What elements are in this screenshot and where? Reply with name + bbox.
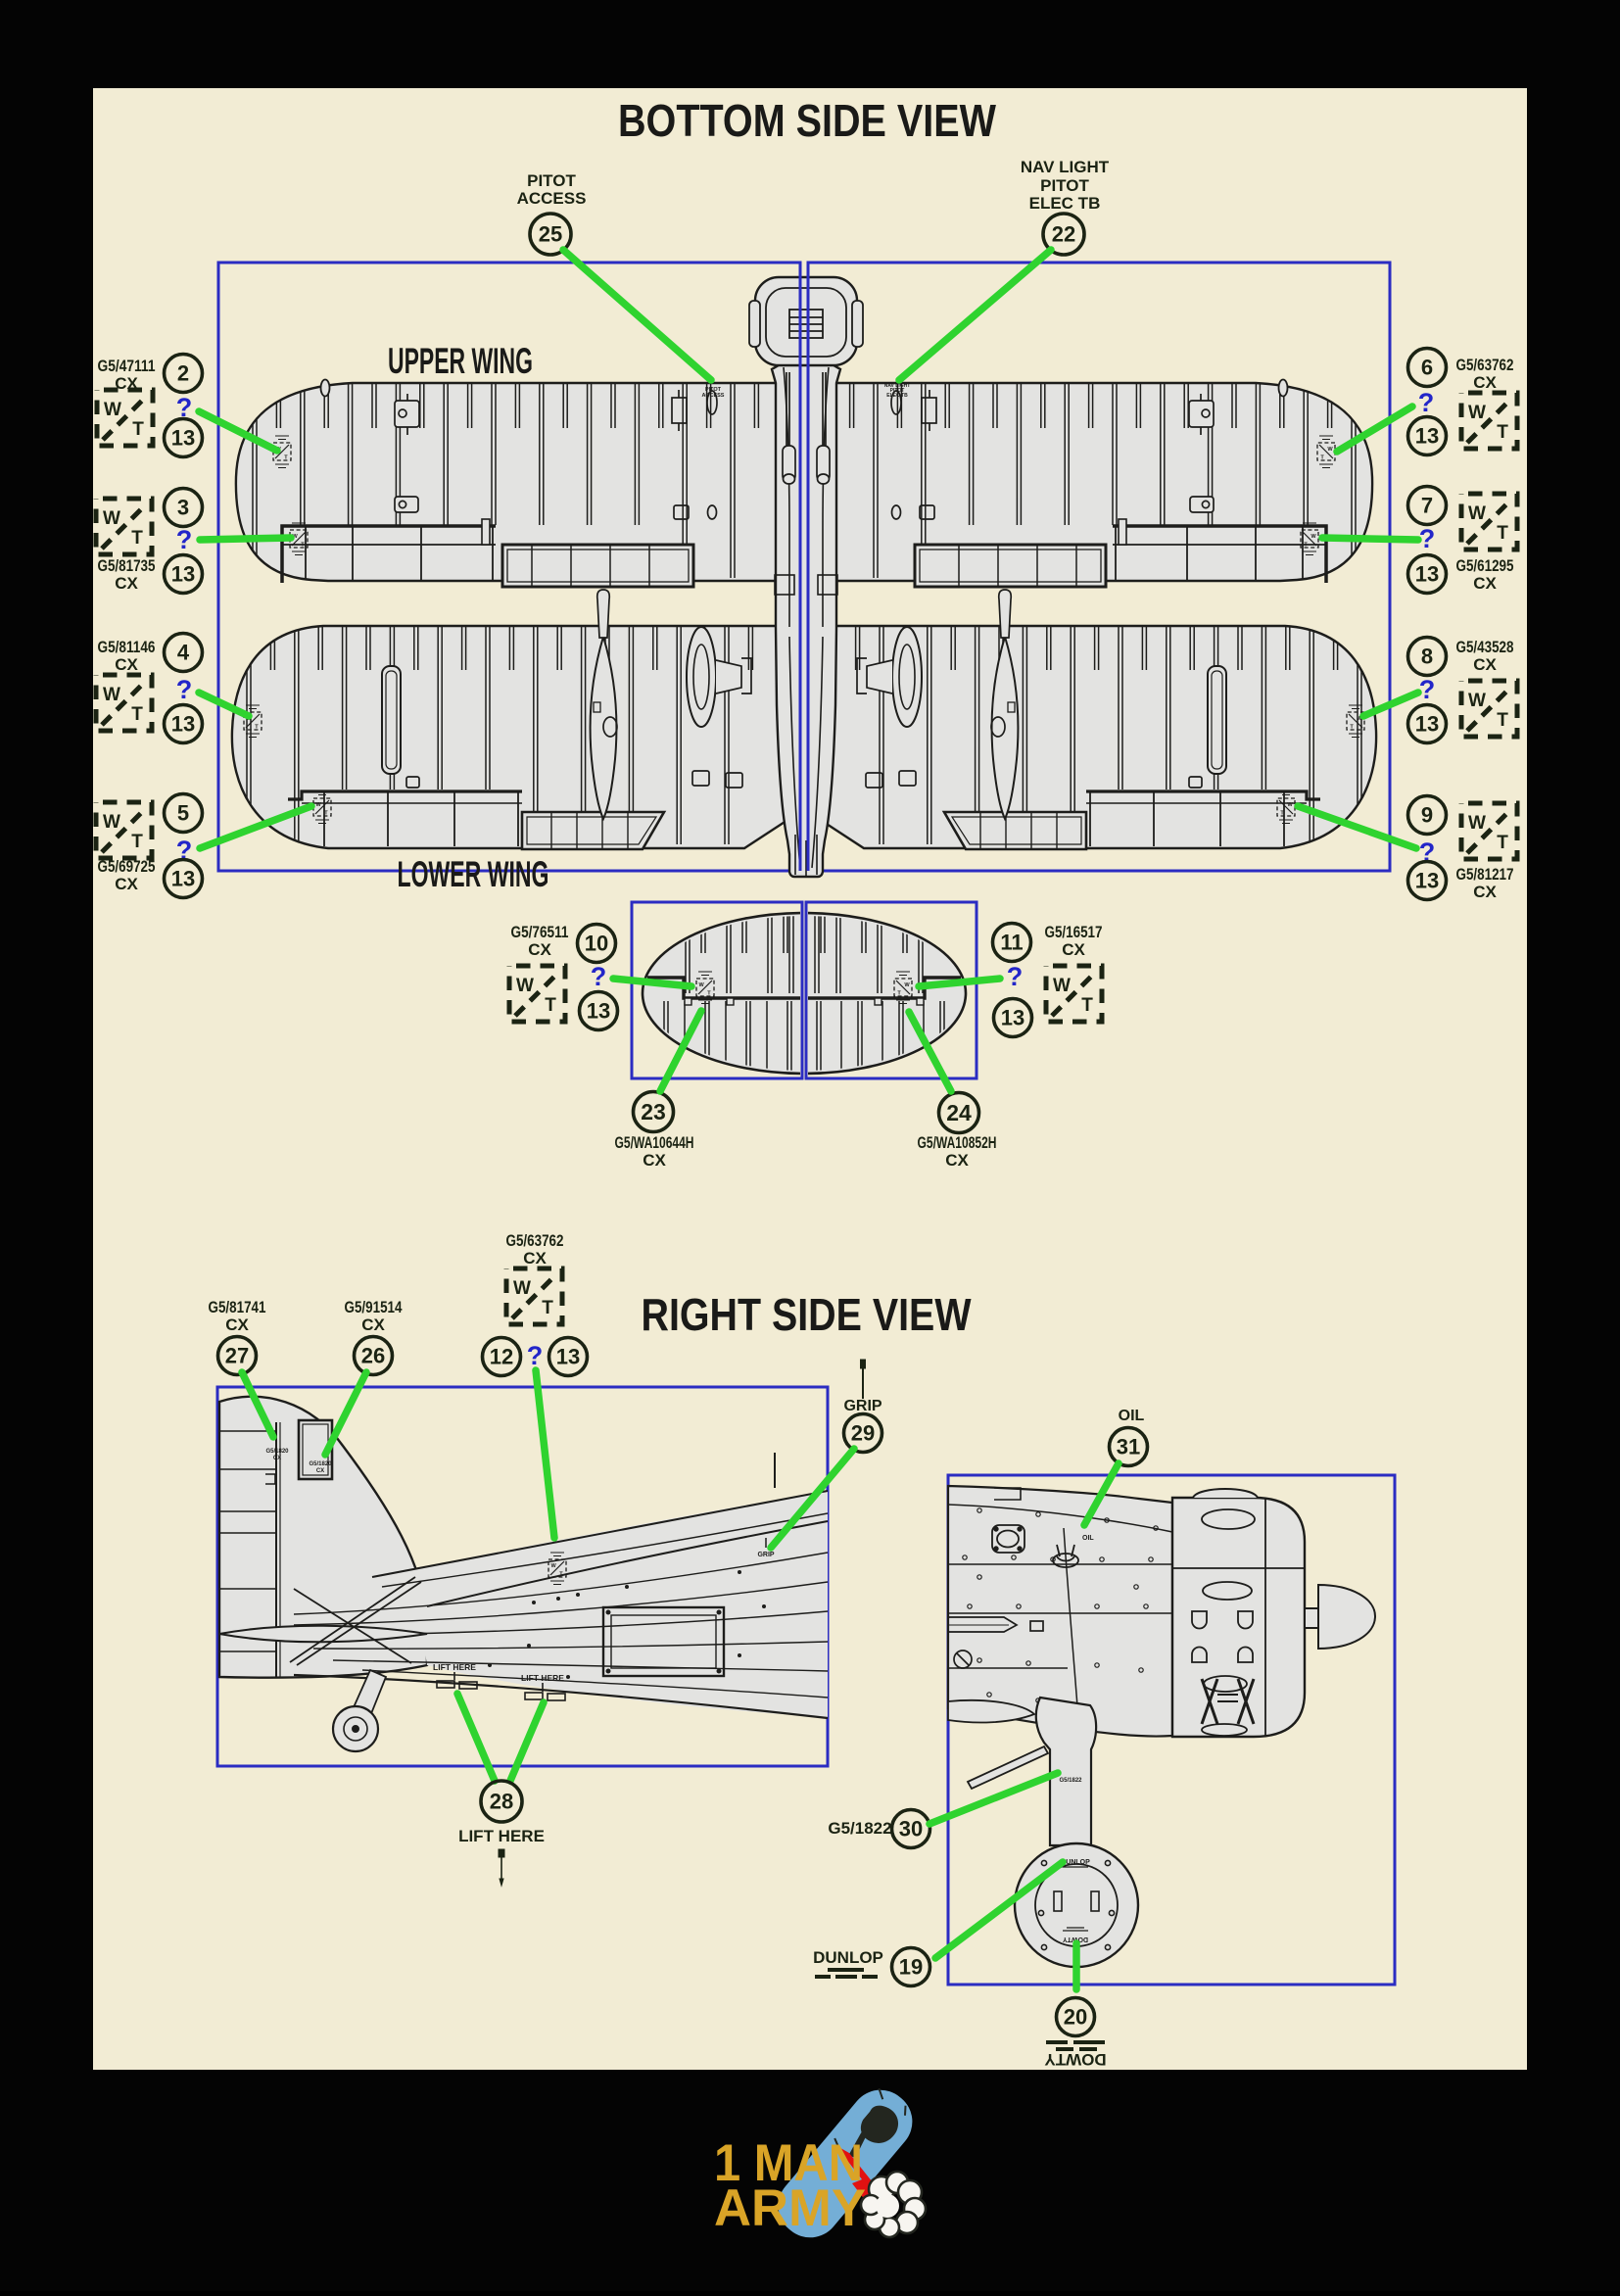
svg-text:T: T <box>1497 710 1508 731</box>
svg-text:13: 13 <box>1001 1006 1024 1030</box>
svg-text:?: ? <box>1419 675 1436 704</box>
svg-text:W: W <box>315 802 321 808</box>
svg-text:9: 9 <box>1421 803 1433 828</box>
svg-text:12: 12 <box>490 1345 513 1369</box>
svg-text:CX: CX <box>115 655 138 674</box>
svg-text:CX: CX <box>316 1468 324 1474</box>
svg-text:G5/81735: G5/81735 <box>98 556 156 575</box>
svg-text:BOTTOM SIDE VIEW: BOTTOM SIDE VIEW <box>618 95 996 146</box>
svg-text:LIFT HERE: LIFT HERE <box>521 1673 564 1683</box>
svg-text:T: T <box>132 419 144 440</box>
svg-text:DOWTY: DOWTY <box>1044 2050 1107 2069</box>
svg-text:T: T <box>1497 833 1508 853</box>
svg-text:G5/81217: G5/81217 <box>1456 865 1514 884</box>
svg-text:25: 25 <box>539 222 562 247</box>
svg-text:ARMY: ARMY <box>714 2179 866 2237</box>
svg-text:OIL: OIL <box>1119 1408 1145 1424</box>
svg-text:G5/WA10644H: G5/WA10644H <box>615 1133 694 1152</box>
svg-text:?: ? <box>176 675 193 704</box>
svg-text:ELEC TB: ELEC TB <box>886 393 908 399</box>
svg-text:CX: CX <box>1062 940 1085 959</box>
svg-text:23: 23 <box>641 1099 666 1124</box>
svg-text:W: W <box>1327 447 1333 453</box>
svg-text:?: ? <box>1418 388 1435 417</box>
svg-text:20: 20 <box>1064 2005 1087 2030</box>
svg-text:13: 13 <box>587 999 610 1024</box>
svg-text:13: 13 <box>1415 712 1439 737</box>
svg-text:T: T <box>131 832 143 852</box>
svg-text:NAV LIGHT: NAV LIGHT <box>1021 158 1110 176</box>
svg-text:T: T <box>1497 422 1508 443</box>
svg-text:W: W <box>698 982 704 988</box>
svg-text:W: W <box>516 976 534 996</box>
svg-text:29: 29 <box>851 1421 875 1446</box>
svg-text:7: 7 <box>1421 494 1433 518</box>
svg-text:W: W <box>550 1563 556 1569</box>
svg-text:?: ? <box>527 1341 544 1370</box>
svg-text:27: 27 <box>225 1344 249 1368</box>
svg-text:31: 31 <box>1117 1435 1140 1459</box>
svg-text:13: 13 <box>1415 424 1439 449</box>
svg-text:22: 22 <box>1052 222 1075 247</box>
svg-text:G5/1820: G5/1820 <box>309 1461 332 1467</box>
svg-text:W: W <box>1468 813 1486 834</box>
svg-text:W: W <box>1053 976 1071 996</box>
svg-text:UPPER WING: UPPER WING <box>388 341 533 381</box>
svg-text:GRIP: GRIP <box>757 1552 774 1558</box>
svg-text:T: T <box>131 528 143 549</box>
svg-text:W: W <box>103 508 120 529</box>
svg-text:G5/WA10852H: G5/WA10852H <box>918 1133 997 1152</box>
svg-text:G5/16517: G5/16517 <box>1045 923 1103 941</box>
svg-text:13: 13 <box>1415 562 1439 587</box>
svg-text:13: 13 <box>556 1345 580 1369</box>
svg-text:W: W <box>1287 802 1293 808</box>
svg-text:LIFT HERE: LIFT HERE <box>458 1827 545 1845</box>
svg-text:G5/1822: G5/1822 <box>1059 1778 1082 1784</box>
svg-text:T: T <box>542 1298 553 1318</box>
svg-text:CX: CX <box>273 1456 281 1461</box>
svg-text:CX: CX <box>528 940 551 959</box>
svg-text:3: 3 <box>177 496 189 520</box>
svg-text:CX: CX <box>523 1249 547 1268</box>
svg-text:13: 13 <box>171 426 195 451</box>
svg-text:10: 10 <box>585 932 608 956</box>
svg-text:G5/81741: G5/81741 <box>209 1298 266 1316</box>
svg-text:28: 28 <box>490 1790 513 1814</box>
svg-text:CX: CX <box>1473 373 1497 392</box>
svg-text:ACCESS: ACCESS <box>517 189 587 208</box>
svg-text:GRIP: GRIP <box>843 1398 881 1414</box>
svg-text:24: 24 <box>946 1100 972 1125</box>
svg-text:LOWER WING: LOWER WING <box>398 854 549 894</box>
svg-text:W: W <box>513 1278 531 1299</box>
svg-text:LIFT HERE: LIFT HERE <box>433 1662 476 1672</box>
svg-text:?: ? <box>1007 962 1024 991</box>
svg-text:G5/91514: G5/91514 <box>345 1298 403 1316</box>
svg-text:5: 5 <box>177 801 189 826</box>
svg-text:G5/76511: G5/76511 <box>511 923 569 941</box>
svg-text:CX: CX <box>115 875 138 893</box>
svg-text:8: 8 <box>1421 645 1433 669</box>
svg-text:PITOT: PITOT <box>527 171 576 190</box>
svg-text:13: 13 <box>1415 869 1439 893</box>
svg-text:19: 19 <box>899 1955 923 1980</box>
svg-text:G5/63762: G5/63762 <box>506 1231 564 1250</box>
svg-text:W: W <box>104 400 121 420</box>
svg-text:T: T <box>131 704 143 725</box>
svg-text:13: 13 <box>171 562 195 587</box>
svg-text:G5/43528: G5/43528 <box>1456 638 1514 656</box>
svg-text:G5/1822: G5/1822 <box>828 1819 891 1838</box>
svg-text:13: 13 <box>171 712 195 737</box>
svg-text:G5/61295: G5/61295 <box>1456 556 1514 575</box>
svg-text:CX: CX <box>115 574 138 593</box>
svg-text:T: T <box>1497 523 1508 544</box>
svg-text:4: 4 <box>177 641 190 665</box>
svg-text:CX: CX <box>1473 574 1497 593</box>
svg-text:30: 30 <box>899 1817 923 1842</box>
svg-text:CX: CX <box>643 1151 666 1170</box>
svg-text:?: ? <box>176 525 193 554</box>
svg-text:W: W <box>103 685 120 705</box>
svg-text:?: ? <box>591 962 607 991</box>
svg-text:T: T <box>1081 995 1093 1016</box>
svg-text:G5/47111: G5/47111 <box>98 357 156 375</box>
svg-text:CX: CX <box>361 1315 385 1334</box>
svg-text:CX: CX <box>945 1151 969 1170</box>
svg-text:DUNLOP: DUNLOP <box>813 1948 883 1967</box>
svg-text:W: W <box>103 812 120 833</box>
svg-text:W: W <box>1468 503 1486 524</box>
svg-text:G5/69725: G5/69725 <box>98 857 156 876</box>
svg-text:26: 26 <box>361 1344 385 1368</box>
svg-text:ACCESS: ACCESS <box>702 393 725 399</box>
svg-text:G5/63762: G5/63762 <box>1456 356 1514 374</box>
svg-text:13: 13 <box>171 867 195 891</box>
svg-text:CX: CX <box>1473 655 1497 674</box>
svg-text:6: 6 <box>1421 356 1433 380</box>
svg-text:11: 11 <box>1000 931 1023 955</box>
svg-text:CX: CX <box>225 1315 249 1334</box>
svg-text:PITOT: PITOT <box>1040 176 1089 195</box>
svg-text:T: T <box>545 995 556 1016</box>
svg-text:2: 2 <box>177 361 189 386</box>
svg-text:RIGHT SIDE VIEW: RIGHT SIDE VIEW <box>642 1289 972 1340</box>
svg-text:G5/1820: G5/1820 <box>265 1449 289 1455</box>
svg-text:OIL: OIL <box>1082 1535 1094 1542</box>
svg-text:W: W <box>1468 403 1486 423</box>
svg-text:CX: CX <box>1473 883 1497 901</box>
svg-text:ELEC TB: ELEC TB <box>1029 194 1101 213</box>
svg-text:W: W <box>1310 534 1316 540</box>
svg-text:G5/81146: G5/81146 <box>98 638 156 656</box>
svg-text:W: W <box>1468 691 1486 711</box>
svg-text:W: W <box>904 982 910 988</box>
